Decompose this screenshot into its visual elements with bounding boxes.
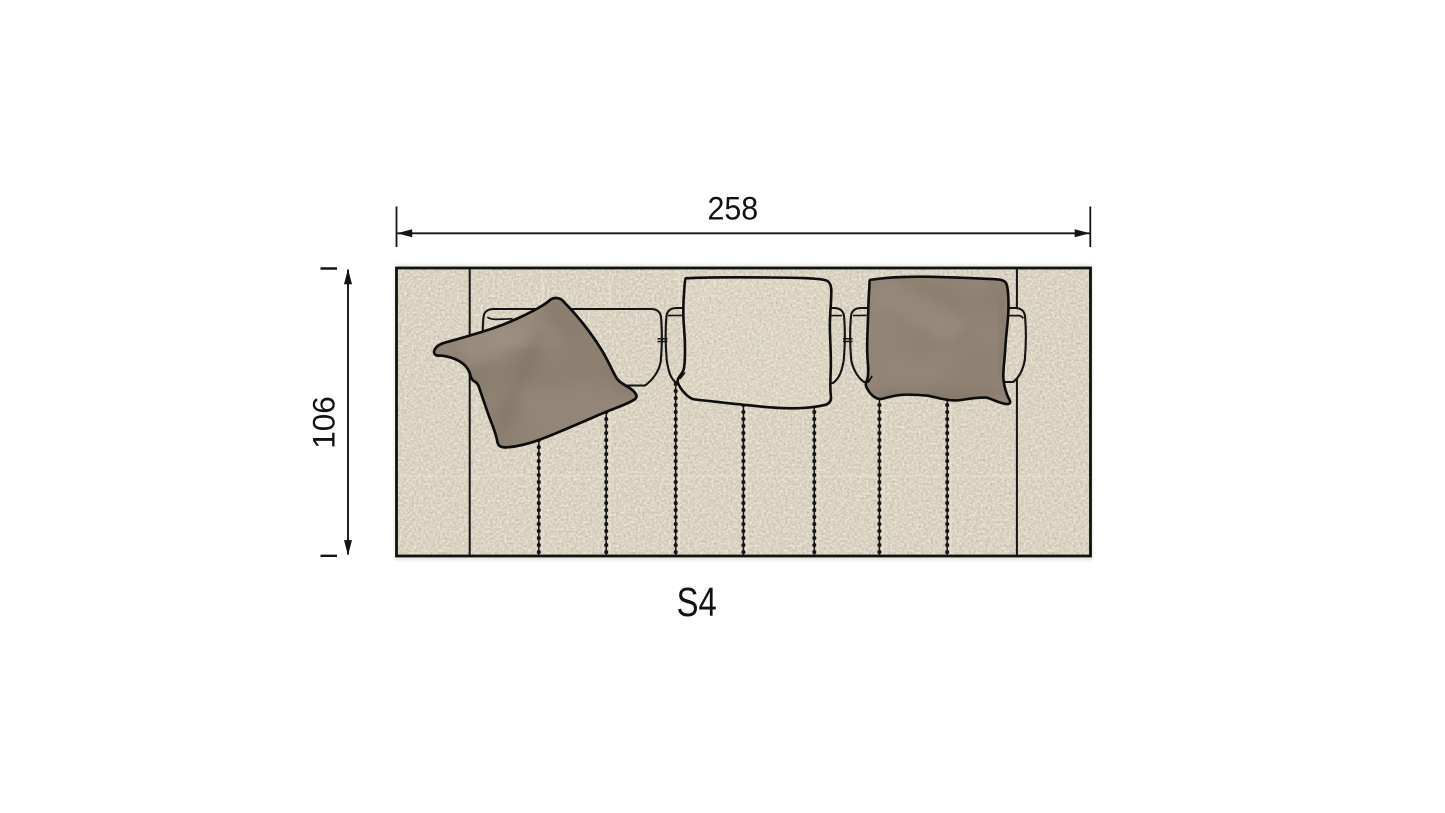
- svg-text:106: 106: [305, 396, 341, 449]
- svg-text:S4: S4: [677, 578, 717, 624]
- svg-text:258: 258: [708, 191, 759, 227]
